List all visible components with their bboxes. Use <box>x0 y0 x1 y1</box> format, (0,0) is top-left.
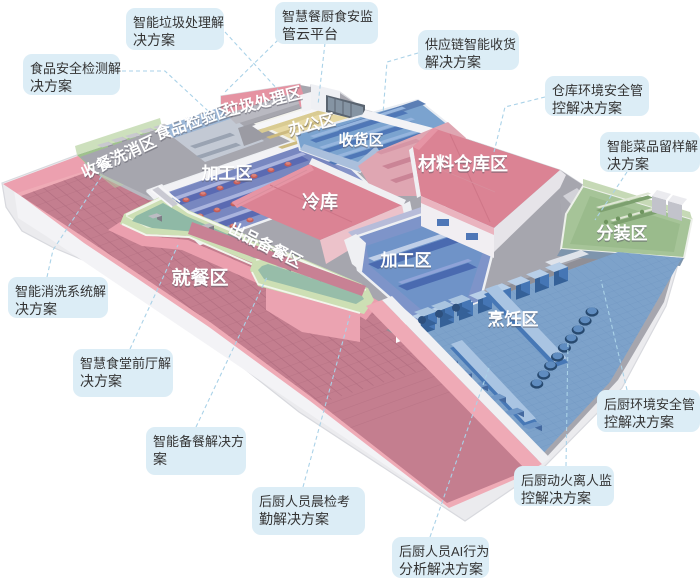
svg-text:烹饪区: 烹饪区 <box>488 309 539 329</box>
svg-text:控解决方案: 控解决方案 <box>552 100 622 116</box>
svg-text:后厨人员晨检考: 后厨人员晨检考 <box>259 494 350 509</box>
svg-text:管云平台: 管云平台 <box>282 26 338 42</box>
svg-text:加工区: 加工区 <box>380 251 432 270</box>
svg-text:材料仓库区: 材料仓库区 <box>418 153 508 174</box>
svg-text:智慧食堂前厅解: 智慧食堂前厅解 <box>80 356 171 371</box>
svg-text:解决方案: 解决方案 <box>425 54 481 70</box>
svg-text:仓库环境安全管: 仓库环境安全管 <box>552 83 643 98</box>
svg-text:分装区: 分装区 <box>597 223 648 243</box>
svg-text:决方案: 决方案 <box>607 156 649 172</box>
svg-text:智能菜品留样解: 智能菜品留样解 <box>607 139 698 154</box>
svg-text:就餐区: 就餐区 <box>171 266 228 289</box>
svg-text:后厨动火离人监: 后厨动火离人监 <box>521 473 612 488</box>
svg-text:决方案: 决方案 <box>15 301 57 317</box>
svg-text:冷库: 冷库 <box>302 191 338 212</box>
svg-text:后厨环境安全管: 后厨环境安全管 <box>604 397 695 412</box>
svg-text:后厨人员AI行为: 后厨人员AI行为 <box>399 544 489 559</box>
svg-text:勤解决方案: 勤解决方案 <box>259 511 329 527</box>
svg-text:控解决方案: 控解决方案 <box>521 490 591 506</box>
svg-text:智能备餐解决方: 智能备餐解决方 <box>153 434 244 449</box>
svg-text:智能消洗系统解: 智能消洗系统解 <box>15 284 106 299</box>
svg-text:收货区: 收货区 <box>338 131 383 149</box>
svg-text:智慧餐厨食安监: 智慧餐厨食安监 <box>282 9 373 24</box>
svg-text:决方案: 决方案 <box>30 78 72 94</box>
svg-text:分析解决方案: 分析解决方案 <box>399 561 483 577</box>
svg-text:食品安全检测解: 食品安全检测解 <box>30 61 121 76</box>
svg-text:智能垃圾处理解: 智能垃圾处理解 <box>133 15 224 30</box>
svg-text:加工区: 加工区 <box>201 164 253 183</box>
svg-text:控解决方案: 控解决方案 <box>604 414 674 430</box>
svg-text:案: 案 <box>153 451 167 467</box>
svg-text:供应链智能收货: 供应链智能收货 <box>425 37 516 52</box>
svg-text:决方案: 决方案 <box>133 32 175 48</box>
svg-text:决方案: 决方案 <box>80 373 122 389</box>
